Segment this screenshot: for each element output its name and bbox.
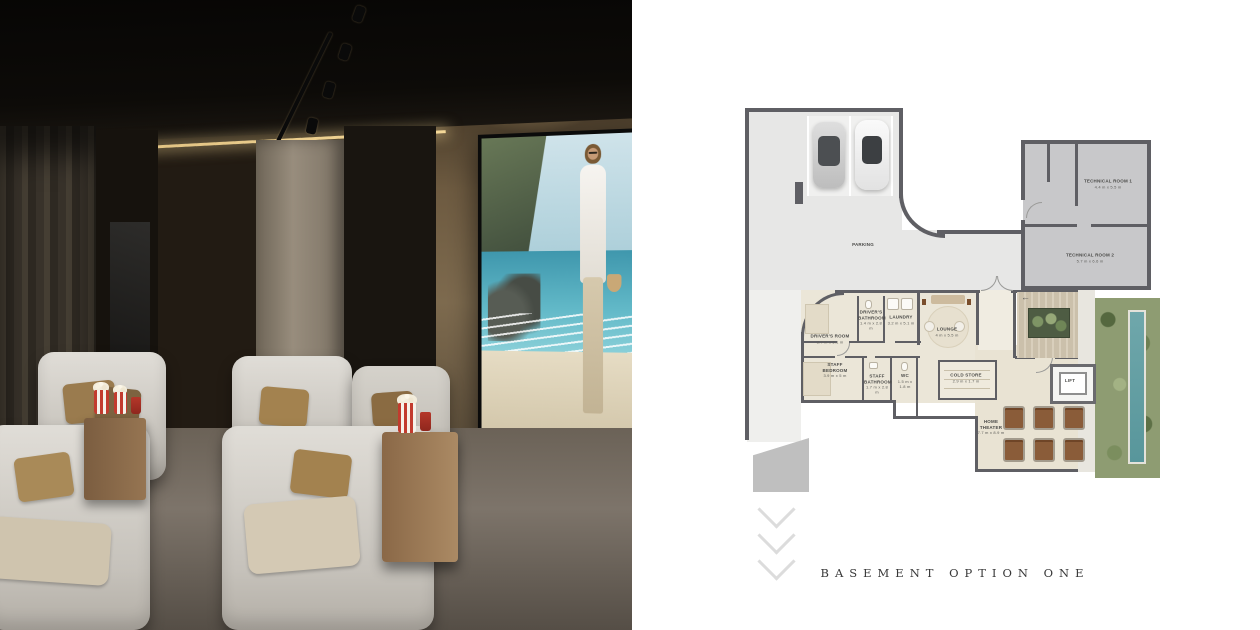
theater-seat [1033, 438, 1055, 462]
popcorn-box [114, 392, 127, 414]
room-dims: 3.7 m x 5.1 m [808, 339, 852, 344]
theater-seat [1063, 438, 1085, 462]
room-label: WC [901, 373, 909, 378]
room-dims: 3.2 m x 5.1 m [887, 320, 915, 325]
room-label: COLD STORE [950, 373, 981, 378]
room-wc: WC1.5 m x 1.8 m [895, 373, 915, 389]
wall [917, 290, 920, 345]
wall [745, 108, 903, 112]
ramp [753, 438, 809, 492]
room-label: TECHNICAL ROOM 2 [1066, 253, 1114, 258]
room-parking: PARKING [837, 242, 889, 248]
bed [805, 304, 829, 334]
room-laundry: LAUNDRY3.2 m x 5.1 m [887, 315, 915, 326]
woman-sunglasses [589, 151, 598, 153]
ramp-corridor [747, 290, 801, 442]
entry-floor [978, 290, 1015, 350]
stall-line [807, 116, 809, 196]
wall [849, 341, 885, 343]
wall [895, 341, 921, 343]
room-label: LAUNDRY [889, 315, 912, 320]
room-label: DRIVER'S ROOM [811, 334, 850, 339]
wall [1021, 140, 1151, 144]
throw-blanket [0, 516, 112, 586]
wall [1025, 224, 1077, 227]
wall [1047, 144, 1050, 182]
wall [875, 356, 920, 358]
room-technical-room-1: TECHNICAL ROOM 14.4 m x 5.5 m [1082, 179, 1134, 190]
room-lift: LIFT [1060, 378, 1080, 384]
room-label: HOME THEATER [980, 419, 1002, 430]
side-table [382, 432, 458, 562]
room-dims: 4 m x 5.5 m [932, 332, 962, 337]
wall [801, 400, 896, 403]
theater-seat [1033, 406, 1055, 430]
wall [1021, 140, 1025, 200]
room-dims: 3.9 m x 5 m [815, 373, 855, 378]
popcorn-box [398, 403, 416, 433]
car-top-view [855, 120, 889, 190]
toilet [865, 300, 872, 309]
room-dims: 1.7 m x 2.8 m [864, 385, 890, 395]
wall [975, 469, 1093, 472]
wall [835, 290, 980, 293]
theater-seat [1003, 438, 1025, 462]
popcorn-box [94, 390, 109, 414]
car-roof [818, 136, 840, 166]
car-top-view [813, 122, 845, 188]
lounge-sofa [931, 295, 965, 304]
projection-screen [478, 128, 632, 456]
accent-chair [967, 299, 971, 305]
shelf-line [944, 370, 990, 371]
drink-cup [131, 397, 141, 414]
room-label: TECHNICAL ROOM 1 [1084, 179, 1132, 184]
lift-shaft [1050, 364, 1096, 404]
theater-seat [1003, 406, 1025, 430]
room-dims: 1.4 m x 2.8 m [858, 321, 884, 331]
room-dims: 4.4 m x 5.5 m [1082, 184, 1134, 189]
floor-plan: ← PARKING TECHNICAL ROOM 14.4 m x 5.5 m … [745, 100, 1165, 485]
room-drivers-bathroom: DRIVER'S BATHROOM1.4 m x 2.8 m [858, 309, 884, 330]
throw-blanket [243, 495, 361, 574]
wall [1013, 290, 1016, 358]
room-lounge: LOUNGE4 m x 5.5 m [932, 327, 962, 338]
washer [887, 298, 899, 310]
pillow [258, 386, 309, 428]
wall [745, 108, 749, 440]
room-staff-bathroom: STAFF BATHROOM1.7 m x 2.8 m [864, 373, 890, 394]
washer [901, 298, 913, 310]
side-table [84, 418, 146, 500]
wall [916, 358, 918, 418]
car-roof [862, 136, 882, 164]
room-dims: 7.7 m x 8.9 m [976, 430, 1006, 435]
pillow [13, 451, 75, 502]
sink [869, 362, 878, 369]
garage-pillar [795, 182, 803, 204]
wall [1075, 144, 1078, 206]
shelf-line [944, 388, 990, 389]
home-theater-photo [0, 0, 632, 630]
pillow [290, 449, 353, 500]
room-cold-store: COLD STORE2.9 m x 1.7 m [949, 373, 983, 384]
woman-bag [607, 274, 622, 292]
wall [1147, 140, 1151, 290]
room-label: LIFT [1065, 378, 1075, 383]
woman-pants [582, 277, 602, 414]
stair-planter [1028, 308, 1070, 338]
room-staff-bedroom: STAFF BEDROOM3.9 m x 5 m [815, 362, 855, 378]
stall-line [849, 116, 851, 196]
room-label: PARKING [852, 242, 874, 247]
room-technical-room-2: TECHNICAL ROOM 25.7 m x 6.6 m [1064, 253, 1116, 264]
wall [976, 290, 979, 345]
wall [937, 230, 1025, 234]
stall-line [891, 116, 893, 196]
theater-seat [1063, 406, 1085, 430]
room-home-theater: HOME THEATER7.7 m x 8.9 m [976, 419, 1006, 435]
room-label: STAFF BATHROOM [864, 373, 892, 384]
drink-cup [420, 412, 431, 431]
stair-direction-arrow-icon: ← [1021, 292, 1030, 302]
wall [1091, 224, 1149, 227]
room-label: LOUNGE [937, 327, 957, 332]
plan-caption: BASEMENT OPTION ONE [745, 566, 1165, 580]
room-dims: 2.9 m x 1.7 m [949, 378, 983, 383]
wall [893, 416, 978, 419]
wall [1021, 220, 1025, 290]
room-dims: 1.5 m x 1.8 m [895, 379, 915, 389]
room-drivers-room: DRIVER'S ROOM3.7 m x 5.1 m [808, 334, 852, 345]
room-label: STAFF BEDROOM [823, 362, 848, 373]
room-dims: 5.7 m x 6.6 m [1064, 258, 1116, 263]
accent-chair [922, 299, 926, 305]
toilet [901, 362, 908, 371]
wall [899, 108, 903, 198]
pool [1128, 310, 1146, 464]
room-label: DRIVER'S BATHROOM [858, 309, 886, 320]
wall [801, 356, 835, 358]
woman-figure [562, 142, 630, 442]
woman-shirt [580, 164, 606, 283]
